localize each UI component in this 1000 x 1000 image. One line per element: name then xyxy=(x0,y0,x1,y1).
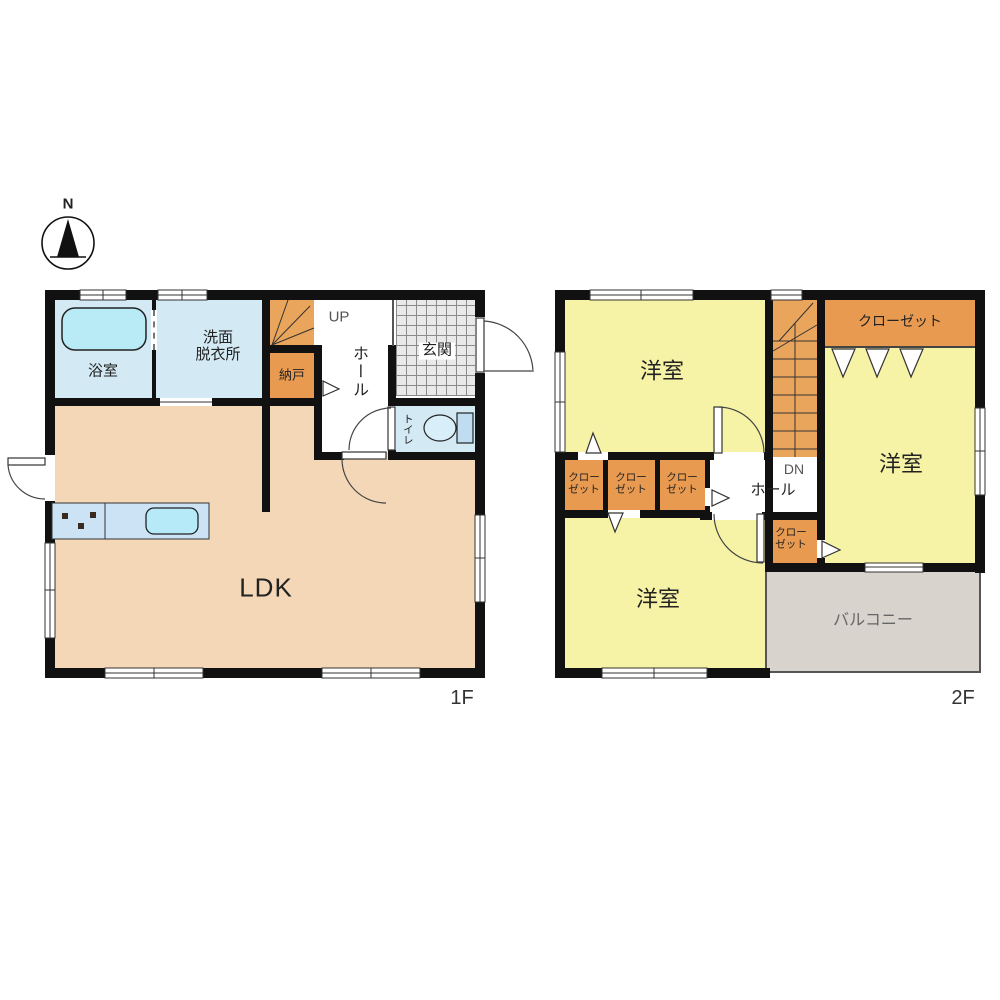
wall xyxy=(655,457,660,510)
wall xyxy=(555,290,985,300)
closet-3-line2: ゼット xyxy=(666,484,698,496)
closet-4-label: クロー ゼット xyxy=(775,527,807,551)
balcony-label: バルコニー xyxy=(833,612,913,630)
wall xyxy=(555,290,565,678)
closet-4-line2: ゼット xyxy=(775,539,807,551)
room-hall-1f xyxy=(322,406,388,452)
entrance-step-line xyxy=(392,300,394,346)
wall xyxy=(270,345,318,353)
wall xyxy=(975,290,985,573)
wall xyxy=(923,563,975,572)
wall xyxy=(314,345,322,460)
closet-2-label: クロー ゼット xyxy=(615,472,647,496)
floor-plan-canvas: N 浴室 洗面 脱衣所 納戸 UP ホール 玄関 トイレ LDK 1F 洋室 ク… xyxy=(0,0,1000,1000)
bedroom-c-label: 洋室 xyxy=(636,588,680,613)
hall-1f-label: ホール xyxy=(349,345,367,399)
closet-3-line1: クロー xyxy=(666,472,698,484)
floor1-label: 1F xyxy=(450,687,473,709)
closet-1-line2: ゼット xyxy=(568,484,600,496)
ldk-side-door-opening xyxy=(45,455,55,501)
stairs-dn-label: DN xyxy=(784,462,804,478)
closet3-opening xyxy=(705,488,710,506)
closet4-opening xyxy=(817,540,825,558)
wall xyxy=(314,452,344,460)
front-door-opening xyxy=(475,317,485,373)
entrance-label: 玄関 xyxy=(419,343,455,360)
hall2-door-opening xyxy=(712,512,762,520)
room-bathroom xyxy=(55,300,152,398)
wall xyxy=(765,563,865,572)
stairs-1f xyxy=(270,300,314,345)
floor2-label: 2F xyxy=(951,687,974,709)
storage-label: 納戸 xyxy=(279,369,305,384)
closet-3-label: クロー ゼット xyxy=(666,472,698,496)
toilet-label: トイレ xyxy=(401,413,413,445)
closet-1-line1: クロー xyxy=(568,472,600,484)
bedroom-a-door-opening xyxy=(714,452,764,460)
wall xyxy=(817,300,825,565)
stairs-2f xyxy=(773,300,817,457)
washroom-opening-line xyxy=(160,401,212,403)
wall xyxy=(555,668,770,678)
bath-door-dash-line xyxy=(153,310,156,350)
wall xyxy=(603,457,608,510)
wall xyxy=(262,300,270,512)
bedroom-b-label: 洋室 xyxy=(879,453,923,478)
compass-icon xyxy=(42,217,94,269)
washroom-label: 洗面 脱衣所 xyxy=(195,330,240,364)
stairs-up-label: UP xyxy=(329,310,350,327)
closet-main-label: クローゼット xyxy=(858,314,942,330)
closet-1-label: クロー ゼット xyxy=(568,472,600,496)
washroom-label-line1: 洗面 xyxy=(195,330,240,347)
washroom-label-line2: 脱衣所 xyxy=(195,347,240,364)
toilet-door-opening xyxy=(388,406,396,450)
wall xyxy=(388,398,475,406)
bathroom-label: 浴室 xyxy=(88,364,118,381)
wall xyxy=(765,300,773,565)
wall xyxy=(388,452,475,460)
closet1-opening xyxy=(578,452,608,460)
ldk-label: LDK xyxy=(239,573,293,602)
closet2-opening xyxy=(608,510,640,518)
bedroom-a-label: 洋室 xyxy=(640,360,684,385)
hall-2f-label: ホール xyxy=(750,483,795,500)
closet-4-line1: クロー xyxy=(775,527,807,539)
compass-north-label: N xyxy=(63,197,74,214)
closet-main-edge xyxy=(825,346,975,348)
closet-2-line1: クロー xyxy=(615,472,647,484)
closet-2-line2: ゼット xyxy=(615,484,647,496)
